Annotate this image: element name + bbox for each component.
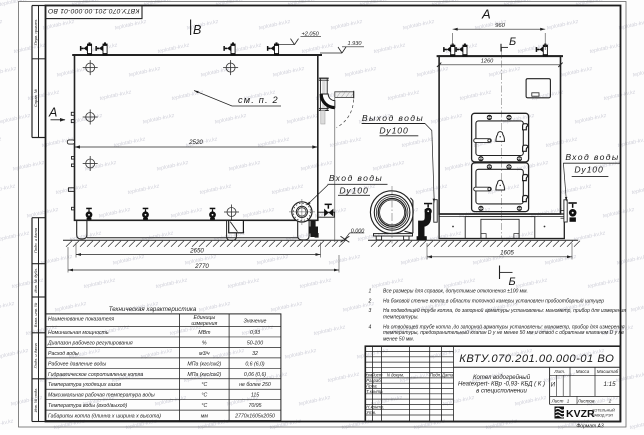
svg-text:Dy100: Dy100 xyxy=(339,185,368,195)
svg-text:Номинальная мощность: Номинальная мощность xyxy=(48,330,109,336)
svg-text:2520: 2520 xyxy=(188,139,203,146)
svg-text:Heatexpert- КВр -0,93- КБД ( К: Heatexpert- КВр -0,93- КБД ( К ) xyxy=(458,382,545,388)
svg-text:4: 4 xyxy=(369,324,372,330)
svg-text:2770: 2770 xyxy=(194,263,209,270)
svg-text:1: 1 xyxy=(369,289,372,295)
svg-text:Т.контр.: Т.контр. xyxy=(366,389,383,394)
svg-text:KVZR: KVZR xyxy=(566,408,595,420)
svg-text:В: В xyxy=(193,23,201,37)
svg-text:Рабочее давление воды: Рабочее давление воды xyxy=(48,361,106,367)
svg-text:115: 115 xyxy=(251,393,259,399)
svg-text:Диапазон рабочего регулировани: Диапазон рабочего регулирования xyxy=(47,340,133,346)
svg-text:1:15: 1:15 xyxy=(603,381,616,388)
svg-text:0,06 (0,6): 0,06 (0,6) xyxy=(244,372,266,378)
svg-text:Гидравлическое сопротивление к: Гидравлическое сопротивление котла xyxy=(48,372,143,378)
svg-text:Дата: Дата xyxy=(441,373,454,378)
svg-text:в специсполнении: в специсполнении xyxy=(476,388,527,394)
svg-text:Б: Б xyxy=(509,276,516,288)
svg-text:960: 960 xyxy=(495,23,505,29)
svg-text:°С: °С xyxy=(201,393,207,399)
svg-text:Утв.: Утв. xyxy=(366,410,376,415)
svg-text:Подп.: Подп. xyxy=(430,373,441,378)
svg-text:не более 250: не более 250 xyxy=(239,382,271,388)
svg-text:А: А xyxy=(48,106,57,120)
svg-text:Подп. и дата: Подп. и дата xyxy=(33,343,38,369)
svg-text:Подп. и дата: Подп. и дата xyxy=(33,227,38,253)
svg-text:На боковой стенке котла в обла: На боковой стенке котла в области топочн… xyxy=(383,297,604,304)
svg-text:Лист: Лист xyxy=(370,373,382,378)
svg-text:1: 1 xyxy=(567,399,570,404)
svg-text:температуры.: температуры. xyxy=(383,315,419,321)
svg-text:КВТУ.070.201.00.000-01 ВО: КВТУ.070.201.00.000-01 ВО xyxy=(459,353,614,365)
svg-text:Максимальная рабочая температу: Максимальная рабочая температура воды xyxy=(48,393,155,399)
svg-text:см. п. 2: см. п. 2 xyxy=(238,95,279,105)
svg-text:Dy100: Dy100 xyxy=(379,126,408,136)
svg-text:менее 50 мм.: менее 50 мм. xyxy=(383,337,414,343)
svg-text:50-100: 50-100 xyxy=(247,340,263,346)
svg-text:КОТЕЛЬНЫЙ: КОТЕЛЬНЫЙ xyxy=(593,409,616,413)
svg-text:Формат А3: Формат А3 xyxy=(576,423,604,429)
svg-text:32: 32 xyxy=(252,351,258,357)
svg-text:3: 3 xyxy=(369,308,372,314)
svg-text:ЗАВОД РЭП: ЗАВОД РЭП xyxy=(593,414,614,418)
svg-text:МПа (кгс/см2): МПа (кгс/см2) xyxy=(187,361,221,367)
svg-text:Наименование показателя: Наименование показателя xyxy=(48,317,114,323)
svg-text:2: 2 xyxy=(608,399,612,404)
svg-text:2770х1605х2050: 2770х1605х2050 xyxy=(234,414,275,420)
svg-text:Котел водогрейный: Котел водогрейный xyxy=(473,374,531,381)
svg-text:1260: 1260 xyxy=(481,59,494,65)
svg-text:Листов: Листов xyxy=(577,399,595,404)
svg-text:0.000: 0.000 xyxy=(351,228,365,234)
svg-text:Все размеры для справок, допус: Все размеры для справок, допустимые откл… xyxy=(383,289,528,295)
svg-text:°С: °С xyxy=(201,382,207,388)
svg-text:Н.контр.: Н.контр. xyxy=(366,405,384,410)
svg-text:Разраб.: Разраб. xyxy=(366,378,382,383)
svg-text:+2.050: +2.050 xyxy=(302,31,320,37)
svg-text:0,93: 0,93 xyxy=(250,330,260,336)
svg-text:мм: мм xyxy=(201,414,209,420)
svg-text:Масса: Масса xyxy=(576,369,590,374)
svg-text:Пров.: Пров. xyxy=(366,384,377,389)
svg-text:Температура воды (вход/выход): Температура воды (вход/выход) xyxy=(48,403,127,409)
svg-text:Dy100: Dy100 xyxy=(574,165,603,175)
svg-text:Перв. примен.: Перв. примен. xyxy=(33,19,38,46)
svg-text:%: % xyxy=(202,340,207,346)
svg-text:Выход воды: Выход воды xyxy=(362,113,424,123)
svg-text:МПа (кгс/см2): МПа (кгс/см2) xyxy=(187,372,221,378)
svg-text:Лист: Лист xyxy=(551,399,564,404)
svg-text:Габариты котла (длинна х ширин: Габариты котла (длинна х ширина х высота… xyxy=(48,414,161,420)
svg-text:Инв. № подл.: Инв. № подл. xyxy=(33,388,38,413)
svg-text:Вход воды: Вход воды xyxy=(565,152,619,162)
svg-text:Техническая характеристика: Техническая характеристика xyxy=(109,306,197,313)
svg-text:Справ. №: Справ. № xyxy=(33,88,38,107)
svg-text:МВт: МВт xyxy=(198,330,211,336)
svg-text:1605: 1605 xyxy=(500,249,514,256)
svg-text:Инв. № дубл.: Инв. № дубл. xyxy=(33,268,38,293)
svg-text:Б: Б xyxy=(509,36,516,48)
svg-text:КВТУ.070.201.00.000-01 ВО: КВТУ.070.201.00.000-01 ВО xyxy=(47,7,139,14)
svg-text:°С: °С xyxy=(201,403,207,409)
svg-text:температуры, предохранительный: температуры, предохранительный клапан D … xyxy=(383,329,624,336)
svg-text:2: 2 xyxy=(368,298,372,304)
svg-text:70/95: 70/95 xyxy=(249,403,262,409)
svg-text:Лит.: Лит. xyxy=(553,369,565,374)
svg-text:Значение: Значение xyxy=(244,319,267,325)
svg-text:1.930: 1.930 xyxy=(348,41,363,47)
svg-text:0,6 (6,0): 0,6 (6,0) xyxy=(245,361,265,367)
svg-text:И: И xyxy=(551,383,556,389)
svg-text:Расход воды: Расход воды xyxy=(48,351,79,357)
svg-text:На подводящей трубе котла, д: На подводящей трубе котла, до запорной а… xyxy=(383,307,626,314)
svg-text:Взам. инв. №: Взам. инв. № xyxy=(33,302,38,327)
svg-text:Масштаб: Масштаб xyxy=(597,369,619,374)
svg-text:м3/ч: м3/ч xyxy=(199,351,210,357)
svg-text:2650: 2650 xyxy=(189,247,204,254)
svg-text:Вход воды: Вход воды xyxy=(329,173,383,183)
svg-text:измерения: измерения xyxy=(191,321,217,327)
svg-text:N докум.: N докум. xyxy=(387,373,404,378)
svg-text:Температура уходящих газов: Температура уходящих газов xyxy=(48,382,121,388)
svg-text:А: А xyxy=(481,7,491,22)
